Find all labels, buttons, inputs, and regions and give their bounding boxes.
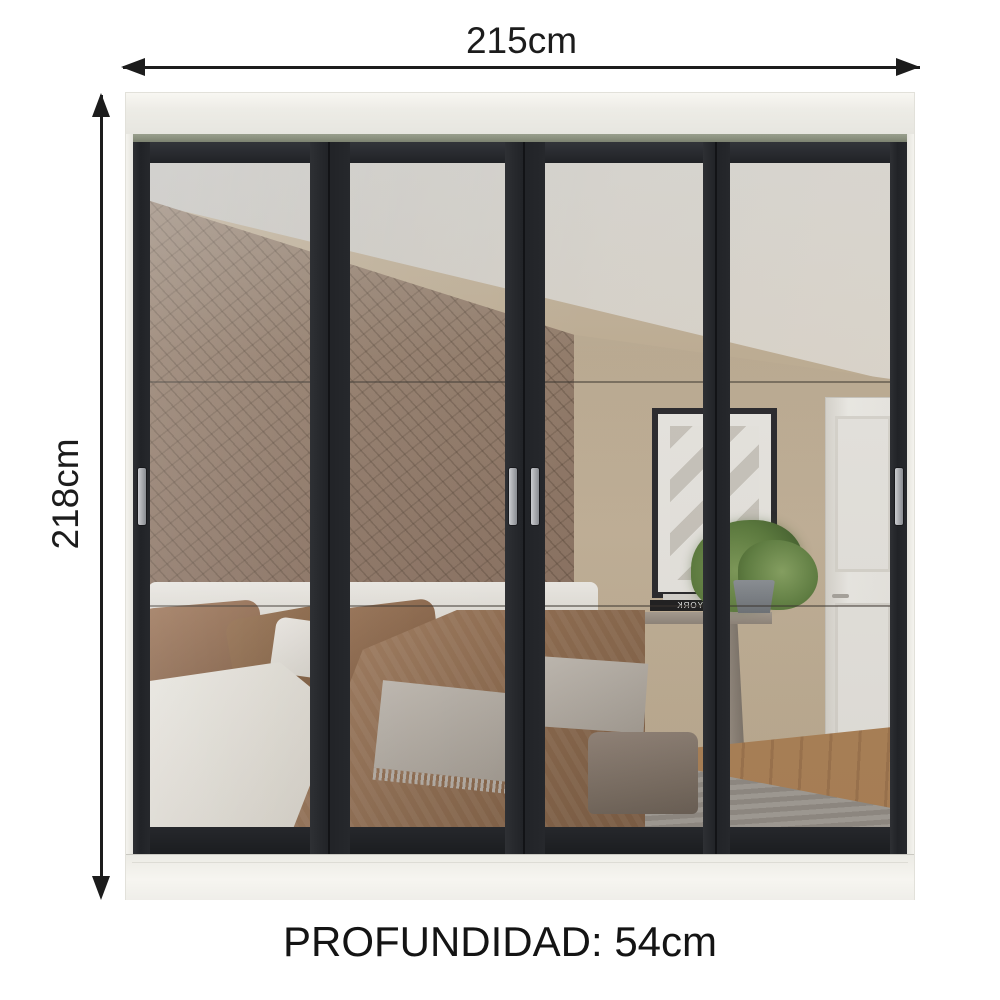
wardrobe-side-right (907, 134, 914, 899)
height-arrow-down-icon (92, 876, 110, 900)
wardrobe-top-panel (126, 93, 914, 135)
wardrobe: NEW YORK (125, 92, 915, 900)
gray-throw-blanket-2 (539, 656, 649, 733)
width-dimension-label: 215cm (123, 20, 920, 62)
gray-throw-blanket (374, 680, 517, 782)
wardrobe-base-plinth (126, 854, 914, 900)
width-arrow-right-icon (896, 58, 920, 76)
height-dimension-line (100, 95, 103, 893)
plant-pot (733, 580, 775, 613)
width-arrow-left-icon (121, 58, 145, 76)
mirror-seam-lower (133, 605, 907, 607)
depth-dimension-label: PROFUNDIDAD: 54cm (0, 918, 1000, 966)
interior-door-handle (832, 594, 849, 598)
wardrobe-side-left (126, 134, 133, 899)
door-molding-upper (835, 416, 891, 572)
reflected-ottoman (588, 732, 698, 814)
height-dimension-label: 218cm (45, 438, 87, 549)
mirror-reflection-scene: NEW YORK (133, 142, 907, 854)
height-arrow-up-icon (92, 93, 110, 117)
product-dimension-diagram: 215cm 218cm NEW (0, 0, 1000, 1000)
mirror-seam-upper (133, 381, 907, 383)
sliding-door-track (133, 134, 907, 142)
width-dimension-line (123, 66, 920, 69)
